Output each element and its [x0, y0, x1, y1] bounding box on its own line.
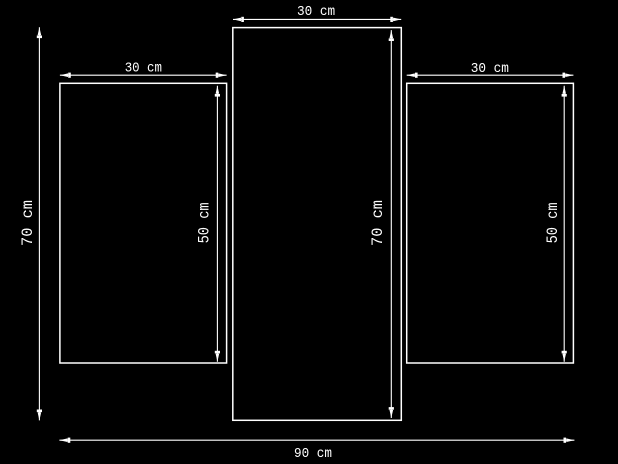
svg-text:70 cm: 70 cm	[19, 200, 37, 246]
svg-text:90 cm: 90 cm	[294, 446, 332, 462]
svg-text:30 cm: 30 cm	[471, 61, 509, 77]
svg-text:30 cm: 30 cm	[297, 4, 335, 20]
svg-text:30 cm: 30 cm	[125, 61, 162, 77]
svg-text:70 cm: 70 cm	[369, 200, 387, 246]
svg-text:50 cm: 50 cm	[544, 202, 562, 243]
svg-text:50 cm: 50 cm	[195, 202, 213, 243]
